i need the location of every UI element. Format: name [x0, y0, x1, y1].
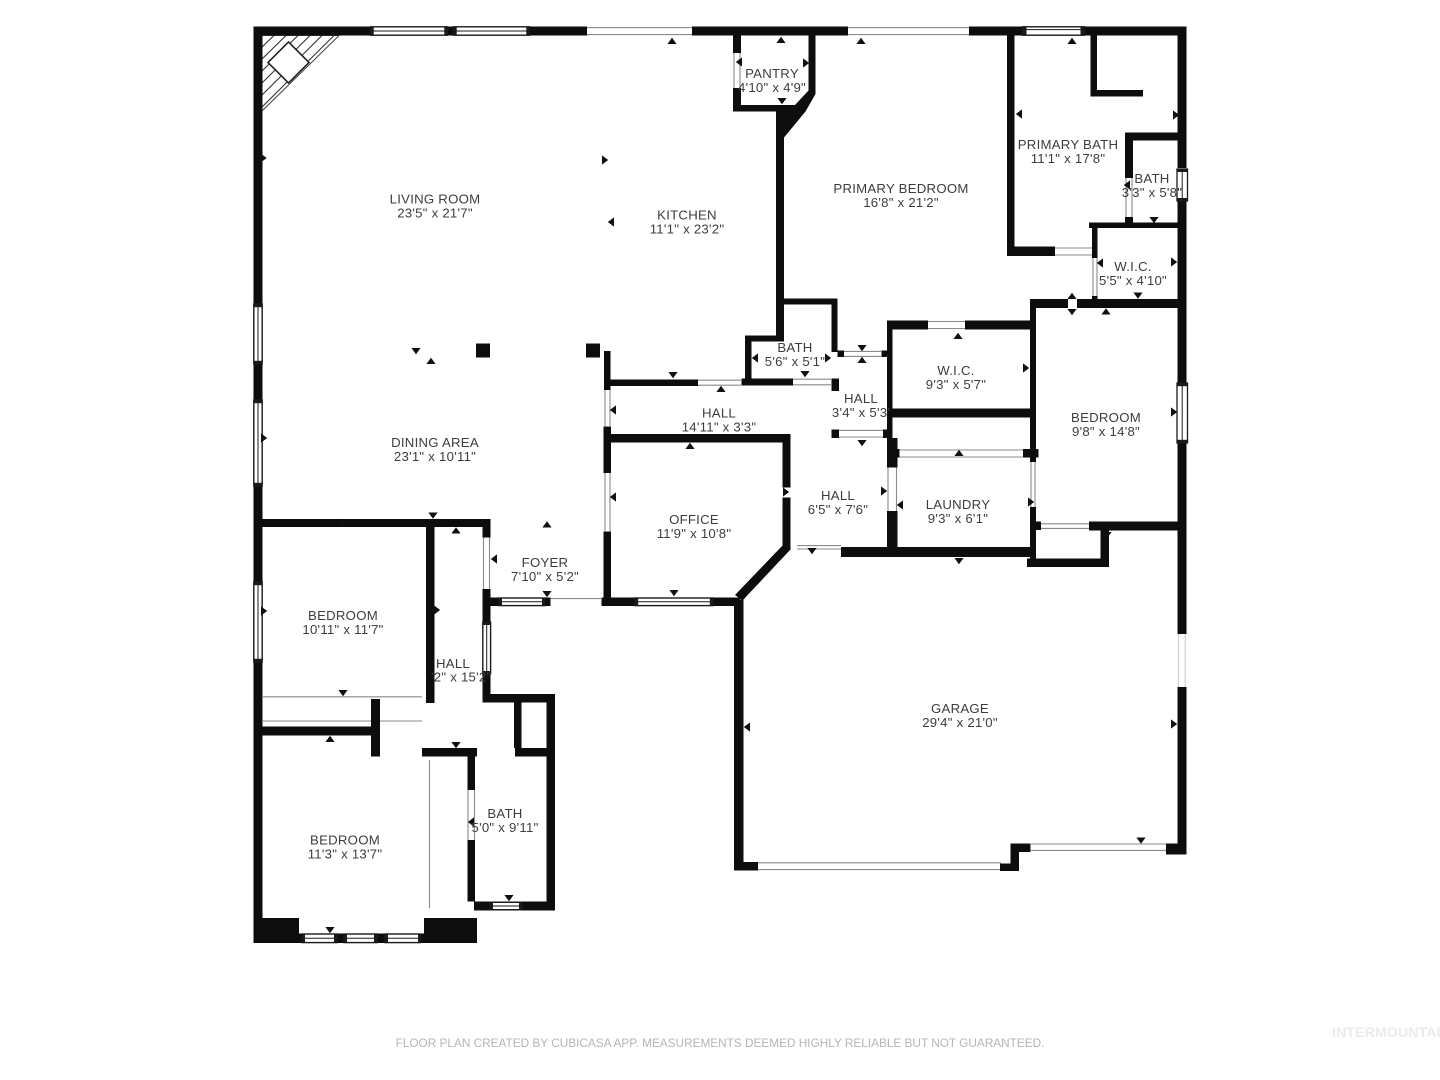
svg-text:3'4" x 5'3': 3'4" x 5'3' — [832, 405, 890, 420]
svg-text:PRIMARY BATH: PRIMARY BATH — [1018, 137, 1118, 152]
svg-text:9'8" x 14'8": 9'8" x 14'8" — [1072, 424, 1140, 439]
svg-text:3'3" x 5'8": 3'3" x 5'8" — [1122, 185, 1182, 200]
svg-text:9'3" x 5'7": 9'3" x 5'7" — [926, 377, 986, 392]
svg-text:PANTRY: PANTRY — [745, 66, 799, 81]
svg-text:BATH: BATH — [1134, 171, 1169, 186]
svg-text:HALL: HALL — [821, 488, 855, 503]
svg-text:11'1" x 17'8": 11'1" x 17'8" — [1031, 151, 1106, 166]
svg-text:23'5" x 21'7": 23'5" x 21'7" — [397, 206, 473, 221]
svg-text:7'10" x 5'2": 7'10" x 5'2" — [511, 569, 579, 584]
svg-text:BATH: BATH — [777, 340, 812, 355]
svg-text:KITCHEN: KITCHEN — [657, 208, 717, 223]
svg-text:INTERMOUNTAIN: INTERMOUNTAIN — [1332, 1024, 1440, 1040]
svg-text:W.I.C.: W.I.C. — [1114, 259, 1151, 274]
svg-text:14'11" x 3'3": 14'11" x 3'3" — [682, 420, 757, 435]
svg-text:FLOOR PLAN CREATED BY CUBICASA: FLOOR PLAN CREATED BY CUBICASA APP. MEAS… — [396, 1036, 1045, 1050]
svg-text:BEDROOM: BEDROOM — [308, 608, 378, 623]
svg-text:4'10" x 4'9": 4'10" x 4'9" — [738, 80, 806, 95]
svg-text:LAUNDRY: LAUNDRY — [926, 497, 991, 512]
svg-text:5'5" x 4'10": 5'5" x 4'10" — [1099, 273, 1167, 288]
svg-text:HALL: HALL — [844, 391, 878, 406]
svg-text:5'0" x 9'11": 5'0" x 9'11" — [471, 820, 538, 835]
svg-text:FOYER: FOYER — [522, 555, 569, 570]
svg-text:OFFICE: OFFICE — [669, 512, 719, 527]
svg-text:GARAGE: GARAGE — [931, 701, 989, 716]
svg-text:PRIMARY BEDROOM: PRIMARY BEDROOM — [833, 181, 968, 196]
svg-text:BEDROOM: BEDROOM — [1071, 410, 1141, 425]
svg-text:5'6" x 5'1": 5'6" x 5'1" — [765, 354, 825, 369]
svg-text:16'8" x 21'2": 16'8" x 21'2" — [863, 195, 939, 210]
svg-text:11'1" x 23'2": 11'1" x 23'2" — [650, 222, 725, 237]
svg-text:9'3" x 6'1": 9'3" x 6'1" — [928, 511, 988, 526]
svg-text:23'1" x 10'11": 23'1" x 10'11" — [394, 449, 476, 464]
svg-text:BEDROOM: BEDROOM — [310, 833, 380, 848]
svg-text:DINING AREA: DINING AREA — [391, 435, 479, 450]
svg-text:11'9" x 10'8": 11'9" x 10'8" — [657, 526, 732, 541]
svg-text:W.I.C.: W.I.C. — [937, 363, 974, 378]
svg-text:BATH: BATH — [487, 806, 522, 821]
svg-text:'2" x 15'2": '2" x 15'2" — [431, 670, 491, 685]
svg-text:11'3" x 13'7": 11'3" x 13'7" — [308, 847, 383, 862]
svg-text:6'5" x 7'6": 6'5" x 7'6" — [808, 502, 868, 517]
svg-text:HALL: HALL — [702, 406, 736, 421]
svg-text:29'4" x 21'0": 29'4" x 21'0" — [922, 715, 998, 730]
svg-text:LIVING ROOM: LIVING ROOM — [390, 192, 481, 207]
svg-text:10'11" x 11'7": 10'11" x 11'7" — [302, 622, 383, 637]
